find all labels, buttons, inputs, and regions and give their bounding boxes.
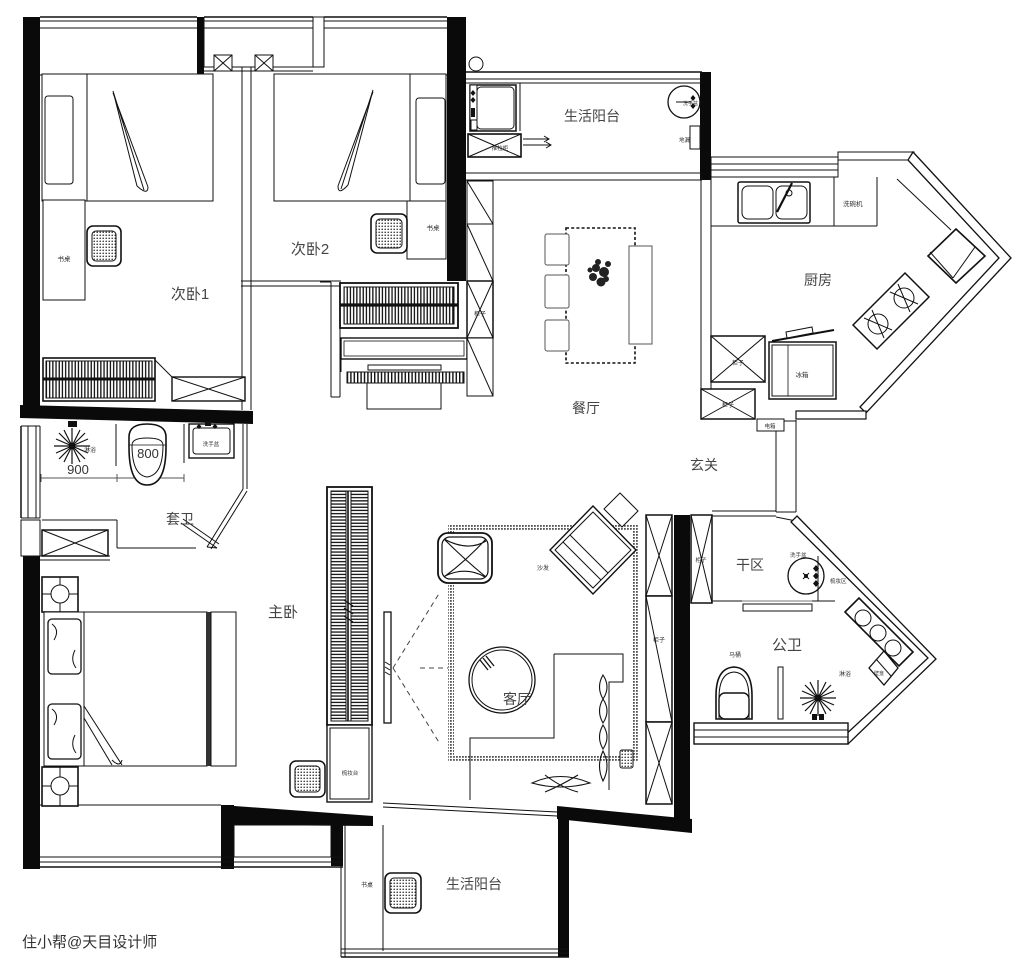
svg-text:书桌: 书桌 <box>58 254 72 263</box>
svg-text:壁龛: 壁龛 <box>874 670 884 677</box>
svg-text:淋浴: 淋浴 <box>84 446 96 454</box>
svg-text:书桌: 书桌 <box>427 223 441 232</box>
svg-text:厨房: 厨房 <box>804 272 832 288</box>
svg-text:生活阳台: 生活阳台 <box>564 108 620 124</box>
svg-text:干区: 干区 <box>736 557 764 573</box>
svg-text:洗手盆: 洗手盆 <box>203 440 220 448</box>
svg-text:沙发: 沙发 <box>537 564 549 572</box>
svg-text:住小帮@天目设计师: 住小帮@天目设计师 <box>22 934 157 951</box>
svg-text:柜子: 柜子 <box>732 359 744 367</box>
svg-text:洗手盆: 洗手盆 <box>790 551 807 559</box>
svg-text:冰箱: 冰箱 <box>796 370 810 379</box>
svg-text:玄关: 玄关 <box>690 457 718 473</box>
svg-text:地漏: 地漏 <box>679 136 691 144</box>
svg-text:公卫: 公卫 <box>772 637 802 654</box>
svg-text:书桌: 书桌 <box>361 881 373 889</box>
svg-text:电箱: 电箱 <box>764 422 776 430</box>
svg-text:梳妆区: 梳妆区 <box>830 577 847 585</box>
svg-text:柜子: 柜子 <box>474 310 486 318</box>
svg-text:柜子: 柜子 <box>695 556 707 564</box>
svg-text:马桶: 马桶 <box>729 651 741 659</box>
svg-text:柜子: 柜子 <box>653 636 665 644</box>
svg-text:次卧2: 次卧2 <box>291 241 329 258</box>
svg-text:推拉柜: 推拉柜 <box>492 144 509 152</box>
svg-text:主卧: 主卧 <box>268 604 298 621</box>
svg-text:客厅: 客厅 <box>503 691 531 707</box>
svg-text:900: 900 <box>67 462 89 477</box>
svg-text:梳妆台: 梳妆台 <box>342 769 359 777</box>
svg-text:套卫: 套卫 <box>166 511 194 527</box>
svg-text:淋浴: 淋浴 <box>839 670 851 678</box>
svg-text:餐厅: 餐厅 <box>572 400 600 416</box>
svg-text:洗碗机: 洗碗机 <box>843 199 863 208</box>
svg-text:次卧1: 次卧1 <box>171 286 209 303</box>
svg-text:洗手盆: 洗手盆 <box>683 100 698 107</box>
svg-text:柜子: 柜子 <box>722 401 734 409</box>
svg-text:生活阳台: 生活阳台 <box>446 876 502 892</box>
svg-text:800: 800 <box>137 446 159 461</box>
